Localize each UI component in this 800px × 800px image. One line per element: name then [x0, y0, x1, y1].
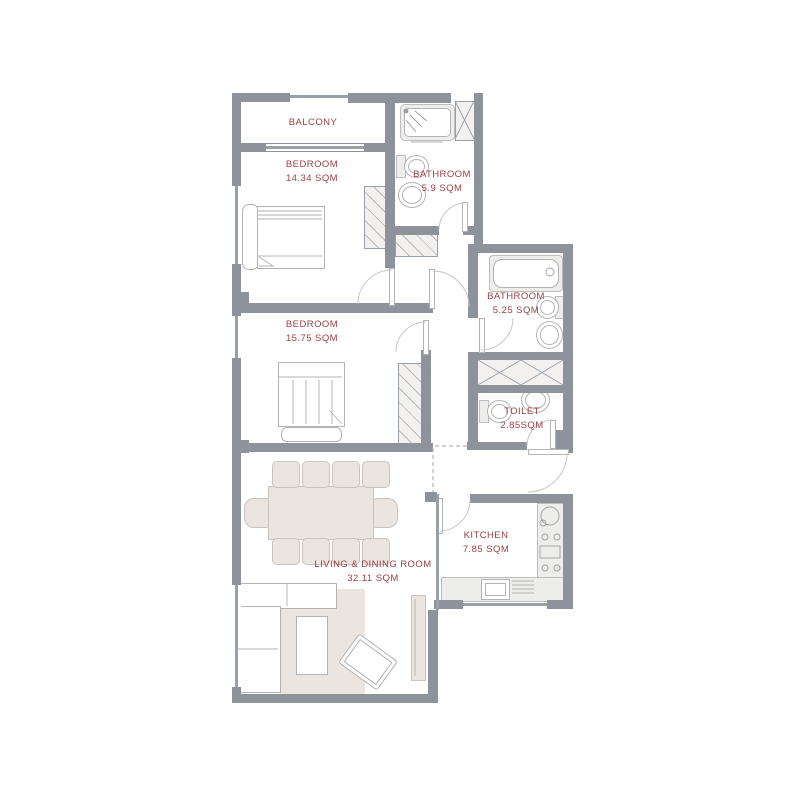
door-leaf-bathroom1	[462, 202, 468, 232]
tv-console	[411, 595, 426, 681]
room-area: 14.34 SQM	[286, 172, 338, 186]
room-area: 15.75 SQM	[286, 332, 338, 346]
room-name: BATHROOM	[487, 290, 545, 304]
room-name: BATHROOM	[413, 168, 471, 182]
kitchen-partition	[436, 494, 439, 610]
room-name: KITCHEN	[463, 529, 509, 543]
door-arc-corridor	[433, 271, 469, 307]
wall-bedroom-divider	[232, 303, 433, 313]
room-area: 5.9 SQM	[413, 182, 471, 196]
bathtub-inner	[493, 259, 559, 288]
bedroom1-window	[235, 186, 238, 264]
room-area: 7.85 SQM	[463, 543, 509, 557]
kitchen-sink	[481, 579, 510, 600]
dining-chair	[332, 461, 360, 488]
room-area: 5.25 SQM	[487, 304, 545, 318]
door-leaf-corridor	[429, 269, 435, 309]
room-label-bedroom1: BEDROOM 14.34 SQM	[286, 158, 338, 185]
coffee-table	[296, 616, 328, 675]
sink2-inner	[540, 325, 559, 345]
room-name: BEDROOM	[286, 158, 338, 172]
floor-plan: BALCONY BEDROOM 14.34 SQM BATHROOM 5.9 S…	[0, 0, 800, 800]
wall-toilet-bottom	[467, 442, 527, 450]
door-arc-bedroom2	[396, 322, 426, 352]
wall-kitchen-bottom-b	[547, 600, 573, 609]
shower-tray	[400, 104, 455, 141]
wall-bathroom2-left	[468, 244, 478, 318]
wall-right-mid	[563, 244, 573, 453]
wall-bathroom1-bottom-a	[395, 226, 439, 235]
dining-table	[268, 486, 374, 540]
wall-toilet-left	[468, 393, 478, 442]
bed2	[278, 362, 345, 427]
door-leaf-bedroom1	[389, 268, 395, 306]
room-label-bathroom1: BATHROOM 5.9 SQM	[413, 168, 471, 195]
room-label-bathroom2: BATHROOM 5.25 SQM	[487, 290, 545, 317]
wall-kitchen-top	[470, 494, 573, 503]
wall-kitchen-right	[563, 494, 573, 609]
wall-bedroom1-right	[385, 93, 395, 268]
room-area: 32.11 SQM	[314, 572, 431, 586]
wall-living-top	[232, 443, 433, 452]
dining-chair	[302, 461, 330, 488]
room-label-balcony: BALCONY	[289, 116, 338, 130]
sink2	[536, 321, 563, 349]
wall-bathroom2-top	[468, 244, 573, 253]
shaft-middle	[478, 360, 563, 385]
room-label-toilet: TOILET 2.85SQM	[500, 405, 543, 432]
door-leaf-entrance	[528, 449, 569, 455]
kitchen-window	[463, 603, 547, 606]
room-label-bedroom2: BEDROOM 15.75 SQM	[286, 318, 338, 345]
door-arc-bathroom2	[481, 318, 513, 350]
bed2-footboard	[281, 427, 342, 442]
shaft-top-right	[455, 101, 476, 141]
door-leaf-bathroom2	[479, 318, 485, 353]
balcony-door-window	[266, 146, 364, 149]
wall-shaft-top	[468, 352, 563, 360]
bed1	[257, 206, 325, 269]
door-arc-entrance	[528, 453, 567, 492]
wall-living-bottom	[232, 694, 438, 703]
room-name: BALCONY	[289, 116, 338, 130]
room-name: BEDROOM	[286, 318, 338, 332]
living-window	[235, 585, 238, 687]
kitchen-sink-inner	[485, 583, 506, 596]
balcony-top-window	[290, 95, 348, 98]
shower-inner	[404, 108, 451, 137]
door-leaf-bedroom2	[423, 320, 429, 355]
room-name: TOILET	[500, 405, 543, 419]
bathtub	[489, 255, 563, 292]
room-area: 2.85SQM	[500, 419, 543, 433]
wall-top-right	[348, 93, 451, 103]
wall-right-upper	[474, 93, 483, 244]
wall-bedroom2-right	[421, 350, 431, 450]
door-leaf-toilet	[550, 420, 556, 449]
room-label-living-dining: LIVING & DINING ROOM 32.11 SQM	[314, 558, 431, 585]
dining-armchair-left	[244, 498, 269, 528]
dining-armchair-right	[373, 498, 398, 528]
dining-chair	[272, 461, 300, 488]
sofa-chaise	[236, 606, 281, 693]
door-arc-kitchen	[440, 500, 470, 531]
wall-shaft-bottom	[468, 385, 573, 393]
wall-living-right	[428, 610, 438, 703]
dining-chair	[272, 538, 300, 565]
door-arc-bedroom1	[358, 270, 392, 304]
room-name: LIVING & DINING ROOM	[314, 558, 431, 572]
bedroom2-window	[235, 316, 238, 358]
room-label-kitchen: KITCHEN 7.85 SQM	[463, 529, 509, 556]
dining-chair	[362, 461, 390, 488]
